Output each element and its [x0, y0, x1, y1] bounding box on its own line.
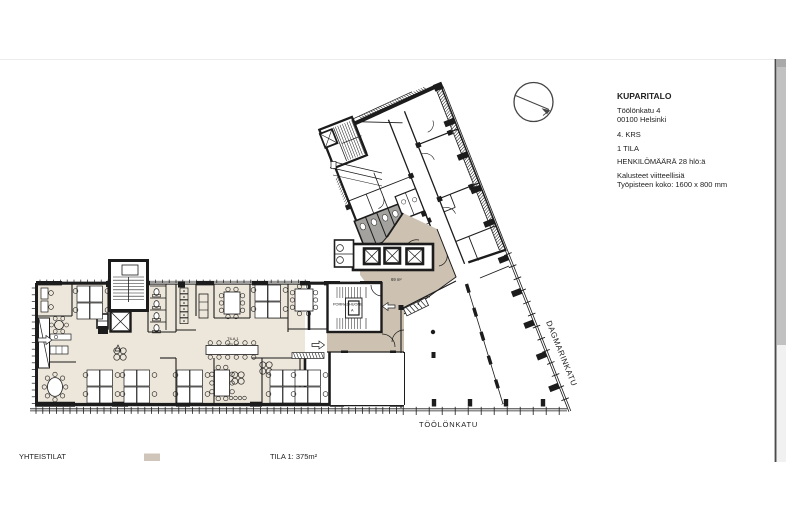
- svg-text:Työpisteen koko: 1600 x 800 mm: Työpisteen koko: 1600 x 800 mm: [617, 180, 727, 189]
- svg-text:TÖÖLÖNKATU: TÖÖLÖNKATU: [419, 420, 478, 429]
- svg-text:KUPARITALO: KUPARITALO: [617, 91, 672, 101]
- svg-text:4. KRS: 4. KRS: [617, 130, 641, 139]
- svg-text:00100 Helsinki: 00100 Helsinki: [617, 115, 667, 124]
- svg-text:375 m²: 375 m²: [227, 343, 239, 347]
- svg-text:TILA 1: TILA 1: [227, 336, 239, 341]
- svg-text:Kalusteet viitteellisiä: Kalusteet viitteellisiä: [617, 171, 685, 180]
- svg-text:YHTEISTILAT: YHTEISTILAT: [19, 452, 66, 461]
- svg-text:HENKILÖMÄÄRÄ 28 hlö:ä: HENKILÖMÄÄRÄ 28 hlö:ä: [617, 157, 706, 166]
- svg-text:Töölönkatu 4: Töölönkatu 4: [617, 106, 660, 115]
- svg-text:1 TILA: 1 TILA: [617, 144, 639, 153]
- svg-text:TILA 1: 375m²: TILA 1: 375m²: [270, 452, 318, 461]
- svg-text:69 m²: 69 m²: [391, 277, 402, 282]
- svg-text:PORRASHUONE: PORRASHUONE: [333, 303, 363, 307]
